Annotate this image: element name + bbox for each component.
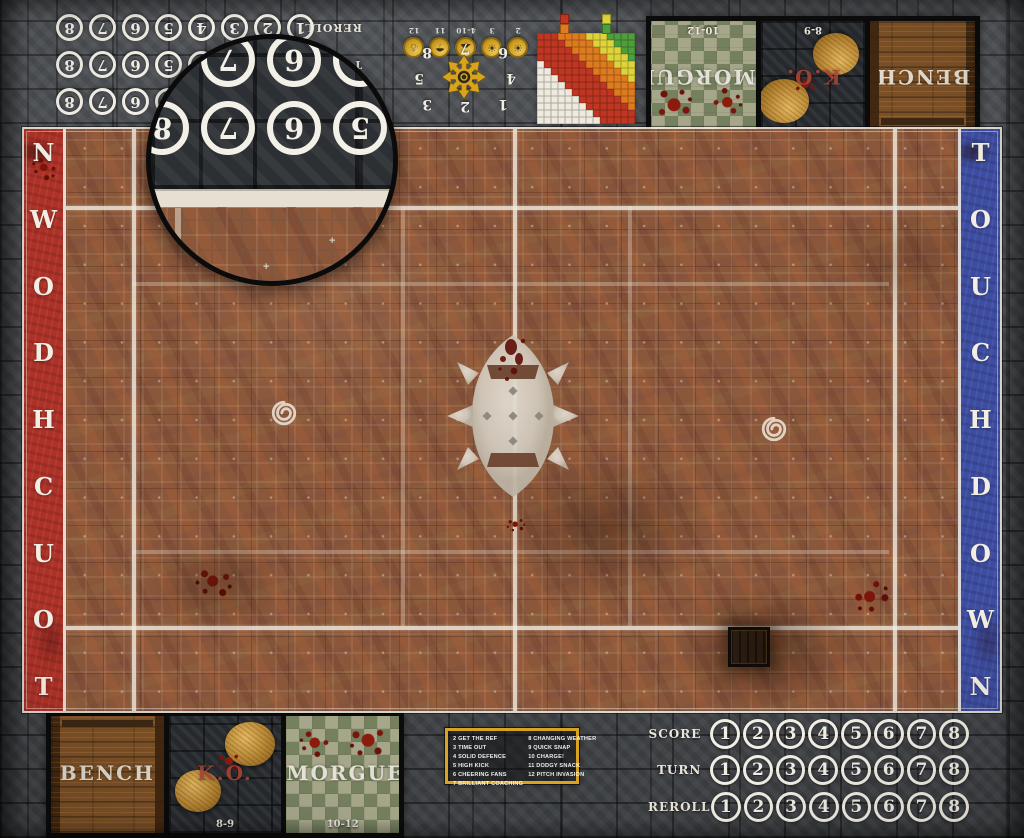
ruler-cell <box>600 82 607 89</box>
ruler-cell <box>572 61 579 68</box>
ruler-cell <box>579 54 586 61</box>
weather-label: 12 <box>408 26 419 35</box>
ruler-cell <box>586 54 593 61</box>
ruler-cell <box>579 117 586 124</box>
ruler-cell <box>565 82 572 89</box>
grid-cross-mark: + <box>263 261 269 273</box>
ruler-cell <box>593 75 600 82</box>
kickoff-entry: 9 QUICK SNAP <box>528 744 596 753</box>
scatter-number: 6 <box>498 44 508 60</box>
track-number-circle[interactable]: 7 <box>907 755 937 785</box>
magnified-number-circle: 6 <box>267 34 321 87</box>
ruler-cell <box>600 47 607 54</box>
ruler-cell <box>572 117 579 124</box>
kickoff-column-right: 8 CHANGING WEATHER9 QUICK SNAP10 CHARGE!… <box>528 735 596 777</box>
ruler-cell <box>537 82 544 89</box>
track-number-circle[interactable]: 6 <box>122 52 149 79</box>
track-number-circle[interactable]: 2 <box>743 755 773 785</box>
ruler-cell <box>614 75 621 82</box>
ruler-cell <box>551 110 558 117</box>
touchdown-letter: H <box>32 408 55 432</box>
touchdown-letter: U <box>970 275 991 299</box>
track-row: REROLL12345678 <box>648 790 972 823</box>
ruler-cell <box>537 54 544 61</box>
blood-splatter <box>293 724 335 765</box>
ruler-cell <box>572 89 579 96</box>
ruler-cell <box>621 40 628 47</box>
touchdown-letter: C <box>971 341 990 365</box>
blood-splatter <box>192 563 235 603</box>
ruler-cell <box>628 103 635 110</box>
ruler-cell <box>586 75 593 82</box>
ruler-cell <box>614 89 621 96</box>
ruler-cell <box>600 117 607 124</box>
morgue-range: 10-12 <box>651 24 756 35</box>
ruler-cell <box>628 68 635 75</box>
ruler-cell <box>558 33 565 40</box>
touchdown-letter: U <box>33 542 54 566</box>
ruler-cell <box>579 75 586 82</box>
kickoff-entry: 8 CHANGING WEATHER <box>528 735 596 744</box>
faint-line-horizontal-bottom <box>132 550 889 554</box>
ruler-cell <box>544 117 551 124</box>
ruler-cell <box>586 110 593 117</box>
ruler-cell <box>628 40 635 47</box>
touchdown-letter: O <box>970 208 991 232</box>
kickoff-column-left: 2 GET THE REF3 TIME OUT4 SOLID DEFENCE5 … <box>453 735 523 777</box>
track-row: TURN12345678 <box>648 754 972 787</box>
ruler-cell <box>614 68 621 75</box>
morgue-panel[interactable]: MORGUE10-12 <box>286 716 399 833</box>
ko-box-panel[interactable]: K.O.8-9 <box>169 716 282 833</box>
morgue-panel[interactable]: MORGUE10-12 <box>651 21 756 129</box>
ruler-cell <box>628 47 635 54</box>
ruler-cell <box>579 89 586 96</box>
ruler-cell <box>607 68 614 75</box>
ruler-cell <box>614 33 621 40</box>
ruler-cell <box>579 33 586 40</box>
ruler-cell <box>593 103 600 110</box>
magnified-number: 7 <box>218 43 238 77</box>
touchdown-letter: W <box>967 608 994 632</box>
ruler-cell <box>544 75 551 82</box>
track-number-circle[interactable]: 8 <box>939 792 969 822</box>
ruler-cell <box>586 117 593 124</box>
ruler-cell <box>600 110 607 117</box>
ruler-cell <box>607 54 614 61</box>
ruler-cell <box>537 33 544 40</box>
track-number-circle[interactable]: 7 <box>907 792 937 822</box>
ruler-cell <box>628 75 635 82</box>
ruler-cell <box>614 40 621 47</box>
magnified-number: 6 <box>284 43 304 77</box>
ruler-cell <box>579 68 586 75</box>
ruler-cell <box>565 47 572 54</box>
touchdown-letter: T <box>35 675 53 699</box>
track-number-circle[interactable]: 6 <box>874 755 904 785</box>
ruler-cell <box>572 54 579 61</box>
ko-box-panel[interactable]: K.O.8-9 <box>761 21 866 129</box>
ruler-cell <box>586 89 593 96</box>
touchdown-letter: O <box>33 275 54 299</box>
touchdown-text-left: NWODHCUOT <box>24 141 63 699</box>
ruler-cell <box>544 110 551 117</box>
ruler-key-cell <box>560 24 569 34</box>
magnified-pitch-border <box>151 189 393 208</box>
bench-label: BENCH <box>51 761 164 785</box>
track-number-circle[interactable]: 3 <box>776 792 806 822</box>
ruler-cell <box>593 40 600 47</box>
ruler-cell <box>551 54 558 61</box>
ruler-cell <box>565 54 572 61</box>
scatter-number: 3 <box>422 96 432 112</box>
ruler-cell <box>621 89 628 96</box>
ruler-cell <box>607 47 614 54</box>
ruler-cell <box>551 75 558 82</box>
ruler-cell <box>565 89 572 96</box>
opponent-dugout: BENCHK.O.8-9MORGUE10-12 <box>646 16 980 134</box>
track-number-circle[interactable]: 8 <box>56 52 83 79</box>
ruler-cell <box>593 96 600 103</box>
ruler-cell <box>551 89 558 96</box>
ruler-cell <box>600 33 607 40</box>
ruler-cell <box>544 61 551 68</box>
track-number-circle[interactable]: 8 <box>939 755 969 785</box>
track-number-circle[interactable]: 1 <box>710 755 740 785</box>
track-number-circle[interactable]: 7 <box>89 52 116 79</box>
track-number-circle[interactable]: 8 <box>56 89 83 116</box>
track-label: REROLL <box>314 22 362 35</box>
ruler-cell <box>628 82 635 89</box>
kickoff-table: 2 GET THE REF3 TIME OUT4 SOLID DEFENCE5 … <box>445 728 579 784</box>
magnified-number-circle: 7 <box>201 34 255 87</box>
ruler-cell <box>600 61 607 68</box>
ruler-cell <box>586 103 593 110</box>
ruler-cell <box>600 40 607 47</box>
weather-label: 4-10 <box>456 26 476 35</box>
magnified-number-circle: 5 <box>333 101 387 155</box>
ruler-cell <box>600 96 607 103</box>
ruler-cell <box>586 96 593 103</box>
ruler-cell <box>558 75 565 82</box>
ruler-cell <box>579 47 586 54</box>
magnified-number: 5 <box>350 111 370 145</box>
ruler-cell <box>565 96 572 103</box>
track-number-circle[interactable]: 8 <box>939 719 969 749</box>
magnifier-bubble: 87658765 + + <box>146 34 398 286</box>
ruler-cell <box>593 68 600 75</box>
ruler-cell <box>565 117 572 124</box>
touchdown-text-right: TOUCHDOWN <box>961 141 1000 699</box>
track-number-circle[interactable]: 6 <box>122 89 149 116</box>
ruler-cell <box>558 61 565 68</box>
track-number-circle[interactable]: 5 <box>841 719 871 749</box>
grid-cross-mark: + <box>329 235 335 247</box>
ruler-cell <box>607 96 614 103</box>
ruler-cell <box>565 33 572 40</box>
scatter-arrows-icon <box>441 54 487 100</box>
ruler-cell <box>621 75 628 82</box>
ruler-cell <box>572 40 579 47</box>
ruler-cell <box>600 68 607 75</box>
ruler-cell <box>551 117 558 124</box>
ruler-cell <box>558 54 565 61</box>
touchdown-letter: H <box>969 408 992 432</box>
ruler-cell <box>593 33 600 40</box>
swirl-mark-icon <box>270 399 298 427</box>
ruler-cell <box>579 96 586 103</box>
magnified-number: 6 <box>284 111 304 145</box>
weather-label: 11 <box>434 26 445 35</box>
ruler-cell <box>544 89 551 96</box>
ruler-cell <box>572 110 579 117</box>
ruler-cell <box>593 82 600 89</box>
ko-range: 8-9 <box>761 24 866 35</box>
ruler-cell <box>572 75 579 82</box>
player-score-turn-reroll-tracks: SCORE12345678TURN12345678REROLL12345678 <box>648 717 972 823</box>
ruler-cell <box>565 110 572 117</box>
ruler-cell <box>614 96 621 103</box>
weather-label: 2 <box>515 26 521 35</box>
ruler-cell <box>551 61 558 68</box>
ruler-cell <box>614 61 621 68</box>
faint-line-vertical-right <box>628 206 632 626</box>
ruler-cell <box>593 54 600 61</box>
ko-label: K.O. <box>761 65 866 89</box>
kickoff-entry: 6 CHEERING FANS <box>453 771 523 780</box>
ruler-cell <box>614 82 621 89</box>
scatter-number: 7 <box>460 40 470 56</box>
track-number-circle[interactable]: 5 <box>155 15 182 42</box>
blood-splatter <box>654 85 694 121</box>
touchdown-letter: T <box>972 141 990 165</box>
ruler-cell <box>607 117 614 124</box>
track-number-circle[interactable]: 7 <box>907 719 937 749</box>
ruler-cell <box>579 110 586 117</box>
ruler-cell <box>586 33 593 40</box>
ruler-cell <box>621 68 628 75</box>
ruler-cell <box>586 61 593 68</box>
track-number-circle[interactable]: 7 <box>89 15 116 42</box>
track-label: REROLL <box>648 800 702 814</box>
magnified-number: 5 <box>350 43 370 77</box>
ruler-key-long <box>560 14 569 34</box>
ruler-cell <box>621 54 628 61</box>
blood-splatter <box>348 724 388 760</box>
ruler-cell <box>607 33 614 40</box>
track-number-circle[interactable]: 4 <box>808 755 838 785</box>
ruler-cell <box>544 47 551 54</box>
bench-panel[interactable]: BENCH <box>870 21 975 129</box>
wing-line-bottom <box>66 626 958 630</box>
ruler-cell <box>628 89 635 96</box>
touchdown-letter: N <box>970 675 992 699</box>
scatter-number: 4 <box>506 70 516 86</box>
track-number-circle[interactable]: 6 <box>122 15 149 42</box>
faint-line-vertical-left <box>401 206 405 626</box>
kickoff-entry: 5 HIGH KICK <box>453 762 523 771</box>
magnified-number: 8 <box>152 111 172 145</box>
kickoff-entry: 12 PITCH INVASION <box>528 771 596 780</box>
ruler-cell <box>558 47 565 54</box>
ruler-cell <box>621 117 628 124</box>
end-zone-right[interactable]: TOUCHDOWN <box>958 129 1000 711</box>
magnified-number-circle: 7 <box>201 101 255 155</box>
ruler-cell <box>579 103 586 110</box>
morgue-label: MORGUE <box>286 761 399 785</box>
ruler-cell <box>621 103 628 110</box>
ruler-cell <box>551 103 558 110</box>
ruler-cell <box>537 40 544 47</box>
ruler-cell <box>558 40 565 47</box>
track-number-circle[interactable]: 1 <box>711 792 741 822</box>
ko-range: 8-9 <box>169 819 282 830</box>
ruler-cell <box>628 117 635 124</box>
weather-label: 3 <box>489 26 495 35</box>
ruler-cell <box>579 82 586 89</box>
ruler-key-cell <box>602 24 611 34</box>
ruler-cell <box>537 89 544 96</box>
ruler-cell <box>551 33 558 40</box>
ruler-cell <box>607 103 614 110</box>
track-number-circle[interactable]: 3 <box>776 755 806 785</box>
ruler-cell <box>600 54 607 61</box>
track-number-circle[interactable]: 4 <box>188 15 215 42</box>
ruler-cell <box>551 47 558 54</box>
ruler-cell <box>614 103 621 110</box>
track-number-circle[interactable]: 5 <box>841 755 871 785</box>
scatter-number: 1 <box>498 96 508 112</box>
ruler-cell <box>572 103 579 110</box>
ruler-cell <box>614 117 621 124</box>
swirl-mark-icon <box>760 415 788 443</box>
ruler-cell <box>537 96 544 103</box>
end-zone-line-left <box>132 129 136 711</box>
trapdoor[interactable] <box>728 627 770 667</box>
track-number-circle[interactable]: 3 <box>776 719 806 749</box>
ruler-cell <box>551 40 558 47</box>
ruler-cell <box>537 61 544 68</box>
magnified-number: 8 <box>152 43 172 77</box>
ruler-cell <box>621 61 628 68</box>
magnified-number: 7 <box>218 111 238 145</box>
ruler-cell <box>600 103 607 110</box>
ruler-cell <box>628 110 635 117</box>
ruler-cell <box>537 75 544 82</box>
ruler-cell <box>614 110 621 117</box>
center-ball-emblem <box>443 329 583 504</box>
touchdown-letter: D <box>33 341 54 365</box>
track-number-circle[interactable]: 4 <box>808 719 838 749</box>
ruler-cell <box>621 33 628 40</box>
ruler-cell <box>544 68 551 75</box>
scatter-dial: 12345678 <box>410 42 518 112</box>
ruler-cell <box>621 110 628 117</box>
blood-splatter <box>848 574 895 620</box>
ruler-cell <box>558 82 565 89</box>
scatter-number: 2 <box>460 98 470 114</box>
kickoff-entry: 7 BRILLIANT COACHING <box>453 780 523 789</box>
ruler-cell <box>600 75 607 82</box>
track-number-circle[interactable]: 6 <box>874 792 904 822</box>
touchdown-letter: O <box>970 542 991 566</box>
track-label: TURN <box>648 763 701 777</box>
ruler-cell <box>565 103 572 110</box>
ruler-cell <box>579 40 586 47</box>
ruler-cell <box>607 61 614 68</box>
ruler-cell <box>593 89 600 96</box>
track-number-circle[interactable]: 4 <box>809 792 839 822</box>
track-number-circle[interactable]: 1 <box>710 719 740 749</box>
ruler-cell <box>544 103 551 110</box>
magnified-number-circle: 6 <box>267 101 321 155</box>
ruler-cell <box>558 117 565 124</box>
ruler-cell <box>628 54 635 61</box>
track-number-circle[interactable]: 2 <box>744 792 774 822</box>
bench-panel[interactable]: BENCH <box>51 716 164 833</box>
ruler-cell <box>614 54 621 61</box>
ruler-cell <box>558 96 565 103</box>
magnified-brick-texture <box>151 208 393 281</box>
ruler-cell <box>537 103 544 110</box>
ruler-cell <box>621 82 628 89</box>
ruler-cell <box>628 96 635 103</box>
touchdown-letter: D <box>970 475 991 499</box>
ruler-cell <box>621 96 628 103</box>
ruler-cell <box>565 75 572 82</box>
kickoff-entry: 4 SOLID DEFENCE <box>453 753 523 762</box>
ruler-cell <box>572 96 579 103</box>
magnified-field-line <box>175 208 181 281</box>
ruler-cell <box>607 40 614 47</box>
ruler-cell <box>558 110 565 117</box>
ruler-cell <box>544 40 551 47</box>
ruler-cell <box>593 117 600 124</box>
bench-label: BENCH <box>870 65 975 89</box>
end-zone-left[interactable]: NWODHCUOT <box>24 129 66 711</box>
ruler-cell <box>551 96 558 103</box>
ruler-cell <box>551 82 558 89</box>
ruler-cell <box>565 61 572 68</box>
player-dugout: BENCHK.O.8-9MORGUE10-12 <box>46 711 404 838</box>
end-zone-line-right <box>893 129 897 711</box>
track-number-circle[interactable]: 2 <box>743 719 773 749</box>
ruler-cell <box>558 103 565 110</box>
ruler-cell <box>565 40 572 47</box>
track-number-circle[interactable]: 7 <box>89 89 116 116</box>
scatter-number: 8 <box>422 44 432 60</box>
ruler-cell <box>572 82 579 89</box>
bench-beam <box>62 720 153 727</box>
track-number-circle[interactable]: 5 <box>842 792 872 822</box>
ruler-cell <box>544 54 551 61</box>
ruler-cell <box>586 40 593 47</box>
track-number-circle[interactable]: 8 <box>56 15 83 42</box>
ruler-key-cell <box>560 14 569 24</box>
ruler-cell <box>558 89 565 96</box>
bench-beam <box>881 118 964 125</box>
ruler-cell <box>593 110 600 117</box>
ruler-cell <box>600 89 607 96</box>
ruler-cell <box>572 47 579 54</box>
ruler-cell <box>614 47 621 54</box>
track-label: SCORE <box>648 727 701 741</box>
ruler-cell <box>628 33 635 40</box>
ruler-cell <box>593 61 600 68</box>
ruler-cell <box>537 110 544 117</box>
track-number-circle[interactable]: 6 <box>874 719 904 749</box>
kickoff-entry: 3 TIME OUT <box>453 744 523 753</box>
